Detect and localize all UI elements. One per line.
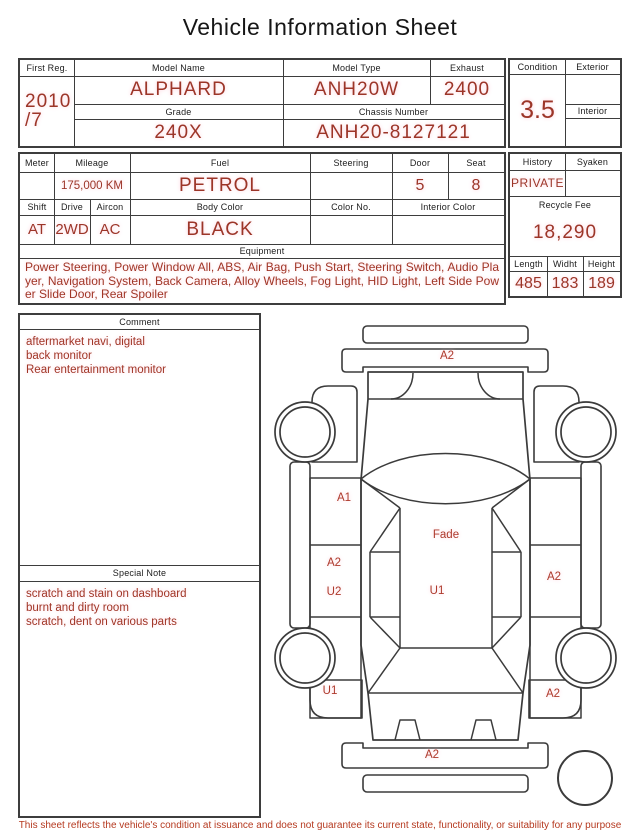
mileage-label: Mileage bbox=[54, 154, 130, 172]
fuel-label: Fuel bbox=[130, 154, 310, 172]
special-note-text: scratch and stain on dashboard burnt and… bbox=[26, 587, 254, 629]
damage-mark-roof-front: Fade bbox=[433, 529, 459, 541]
seat-value: 8 bbox=[448, 172, 504, 199]
exterior-label: Exterior bbox=[565, 60, 620, 74]
steering-label: Steering bbox=[310, 154, 392, 172]
exterior-value bbox=[565, 74, 620, 104]
first-reg-label: First Reg. bbox=[20, 60, 74, 76]
shift-label: Shift bbox=[20, 199, 54, 215]
condition-table: Condition Exterior 3.5 Interior bbox=[508, 58, 622, 148]
damage-mark-left-front-door: A1 bbox=[337, 492, 351, 504]
width-label: Widht bbox=[547, 256, 583, 271]
exhaust-value: 2400 bbox=[430, 76, 504, 104]
syaken-label: Syaken bbox=[565, 154, 620, 170]
history-label: History bbox=[510, 154, 565, 170]
length-value: 485 bbox=[510, 271, 547, 296]
condition-value: 3.5 bbox=[510, 74, 565, 146]
model-name-label: Model Name bbox=[74, 60, 283, 76]
body-color-label: Body Color bbox=[130, 199, 310, 215]
model-type-value: ANH20W bbox=[283, 76, 430, 104]
color-no-value bbox=[310, 215, 392, 244]
grade-label: Grade bbox=[74, 104, 283, 119]
history-value: PRIVATE bbox=[510, 170, 565, 196]
car-body bbox=[361, 372, 530, 740]
comment-box: Comment aftermarket navi, digital back m… bbox=[18, 313, 261, 818]
height-value: 189 bbox=[583, 271, 620, 296]
damage-mark-right-rear-quarter: A2 bbox=[546, 688, 560, 700]
disclaimer-text: This sheet reflects the vehicle's condit… bbox=[0, 820, 640, 831]
interior-color-label: Interior Color bbox=[392, 199, 504, 215]
history-table: History Syaken PRIVATE Recycle Fee 18,29… bbox=[508, 152, 622, 298]
vehicle-diagram: A2 A1 Fade A2 U2 U1 A2 U1 A2 A2 bbox=[265, 315, 640, 820]
interior-value bbox=[565, 118, 620, 146]
height-label: Height bbox=[583, 256, 620, 271]
exhaust-label: Exhaust bbox=[430, 60, 504, 76]
damage-mark-front-bumper: A2 bbox=[440, 350, 454, 362]
fuel-value: PETROL bbox=[130, 172, 310, 199]
damage-mark-rear-bumper: A2 bbox=[425, 749, 439, 761]
meter-value bbox=[20, 172, 54, 199]
vehicle-identity-table: First Reg. 2010 /7 Model Name Model Type… bbox=[18, 58, 506, 148]
special-note-label: Special Note bbox=[20, 565, 259, 581]
model-name-value: ALPHARD bbox=[74, 76, 283, 104]
aircon-value: AC bbox=[90, 215, 130, 244]
grade-value: 240X bbox=[74, 119, 283, 146]
model-type-label: Model Type bbox=[283, 60, 430, 76]
equipment-list: Power Steering, Power Window All, ABS, A… bbox=[20, 259, 504, 305]
color-no-label: Color No. bbox=[310, 199, 392, 215]
steering-value bbox=[310, 172, 392, 199]
chassis-number-value: ANH20-8127121 bbox=[283, 119, 504, 146]
syaken-value bbox=[565, 170, 620, 196]
shift-value: AT bbox=[20, 215, 54, 244]
spare-tire bbox=[558, 751, 612, 805]
door-label: Door bbox=[392, 154, 448, 172]
damage-mark-right-slide-door: A2 bbox=[547, 571, 561, 583]
damage-mark-left-slide-door-lower: U2 bbox=[327, 586, 342, 598]
door-value: 5 bbox=[392, 172, 448, 199]
vehicle-diagram-svg bbox=[265, 315, 640, 820]
mileage-value: 175,000 KM bbox=[54, 172, 130, 199]
aircon-label: Aircon bbox=[90, 199, 130, 215]
seat-label: Seat bbox=[448, 154, 504, 172]
interior-label: Interior bbox=[565, 104, 620, 118]
recycle-fee-value: 18,290 bbox=[510, 213, 620, 253]
damage-mark-left-slide-door-upper: A2 bbox=[327, 557, 341, 569]
equipment-label: Equipment bbox=[20, 244, 504, 258]
damage-mark-roof-center: U1 bbox=[430, 585, 445, 597]
vehicle-spec-table: Meter Mileage Fuel Steering Door Seat 17… bbox=[18, 152, 506, 305]
comment-text: aftermarket navi, digital back monitor R… bbox=[26, 335, 254, 377]
interior-color-value bbox=[392, 215, 504, 244]
damage-mark-left-rear-quarter: U1 bbox=[323, 685, 338, 697]
drive-label: Drive bbox=[54, 199, 90, 215]
chassis-number-label: Chassis Number bbox=[283, 104, 504, 119]
length-label: Length bbox=[510, 256, 547, 271]
meter-label: Meter bbox=[20, 154, 54, 172]
page-title: Vehicle Information Sheet bbox=[0, 14, 640, 41]
body-color-value: BLACK bbox=[130, 215, 310, 244]
condition-label: Condition bbox=[510, 60, 565, 74]
drive-value: 2WD bbox=[54, 215, 90, 244]
comment-label: Comment bbox=[20, 315, 259, 329]
recycle-fee-label: Recycle Fee bbox=[510, 196, 620, 213]
width-value: 183 bbox=[547, 271, 583, 296]
first-reg-value: 2010 /7 bbox=[20, 76, 79, 146]
